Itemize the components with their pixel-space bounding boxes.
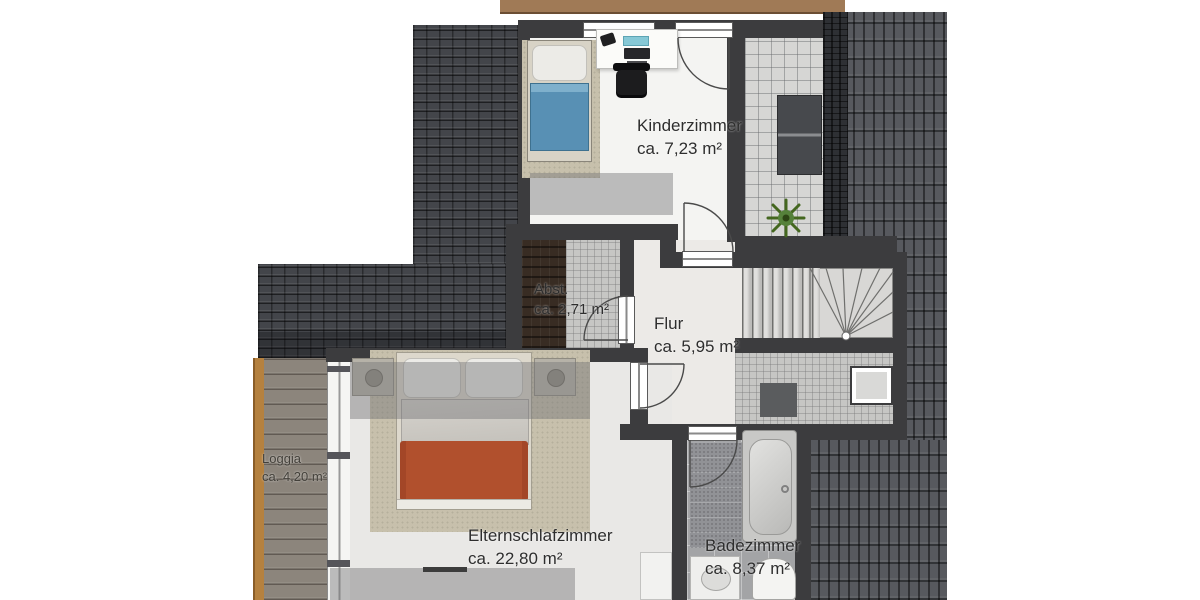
window-mullion (327, 560, 350, 567)
sideboard (777, 95, 822, 175)
bath-door-frame (688, 426, 737, 441)
doormat (760, 383, 797, 417)
room-name: Kinderzimmer (637, 116, 742, 135)
room-label-kinderzimmer: Kinderzimmer ca. 7,23 m² (637, 115, 742, 161)
room-label-badezimmer: Badezimmer ca. 8,37 m² (705, 535, 800, 581)
room-label-abstellraum: Abst. ca. 2,71 m² (534, 280, 609, 321)
wall-stairs-east (893, 252, 907, 440)
dresser (640, 552, 672, 600)
roof-left-upper (413, 25, 518, 265)
room-name: Badezimmer (705, 536, 800, 555)
phone (600, 32, 617, 47)
roof-slope-overlay-kinderzimmer (530, 173, 673, 215)
wall-abst-left (506, 224, 522, 356)
room-name: Elternschlafzimmer (468, 526, 613, 545)
wall-kid-bottom (518, 224, 678, 240)
kid-duvet (530, 83, 589, 151)
roof-below-bathroom (808, 440, 947, 600)
shower-area (690, 442, 742, 548)
room-area: ca. 2,71 m² (534, 300, 609, 320)
laptop (623, 36, 649, 46)
room-label-loggia: Loggia ca. 4,20 m² (262, 450, 327, 485)
wall-stairs-bottom (735, 338, 897, 353)
abst-door-frame (618, 296, 635, 344)
room-name: Flur (654, 314, 683, 333)
room-area: ca. 22,80 m² (468, 548, 613, 571)
bathtub (742, 430, 797, 542)
roof-slope-overlay-bedroom-bottom (330, 568, 575, 600)
kid-bed (527, 40, 592, 162)
roof-slope-overlay-bedroom-top (350, 362, 590, 419)
wall-stairs-top (735, 236, 897, 268)
wall-bath-west (672, 438, 687, 600)
window-mullion (327, 452, 350, 459)
floor-plan-canvas: Kinderzimmer ca. 7,23 m² Abst. ca. 2,71 … (0, 0, 1200, 600)
monitor (624, 48, 650, 59)
office-chair-seat (616, 70, 647, 95)
room-area: ca. 5,95 m² (654, 336, 739, 359)
staircase (742, 268, 893, 338)
room-name: Loggia (262, 451, 301, 466)
room-label-elternschlafzimmer: Elternschlafzimmer ca. 22,80 m² (468, 525, 613, 571)
kid-pillow (532, 45, 587, 81)
kid-door-frame (682, 251, 733, 267)
chimney (850, 366, 893, 405)
staircase-straight-run (742, 268, 820, 338)
terrace-door-frame (675, 22, 733, 38)
room-name: Abst. (534, 281, 568, 298)
fascia-strip (500, 0, 845, 14)
room-area: ca. 8,37 m² (705, 558, 800, 581)
furniture-edge-line (423, 567, 467, 572)
window-mullion (327, 366, 350, 372)
bedroom-door-frame (630, 362, 648, 410)
room-area: ca. 4,20 m² (262, 468, 327, 486)
red-duvet (400, 441, 528, 501)
room-label-flur: Flur ca. 5,95 m² (654, 313, 739, 359)
footboard (397, 499, 531, 509)
room-area: ca. 7,23 m² (637, 138, 742, 161)
bathtub-faucet (781, 485, 789, 493)
